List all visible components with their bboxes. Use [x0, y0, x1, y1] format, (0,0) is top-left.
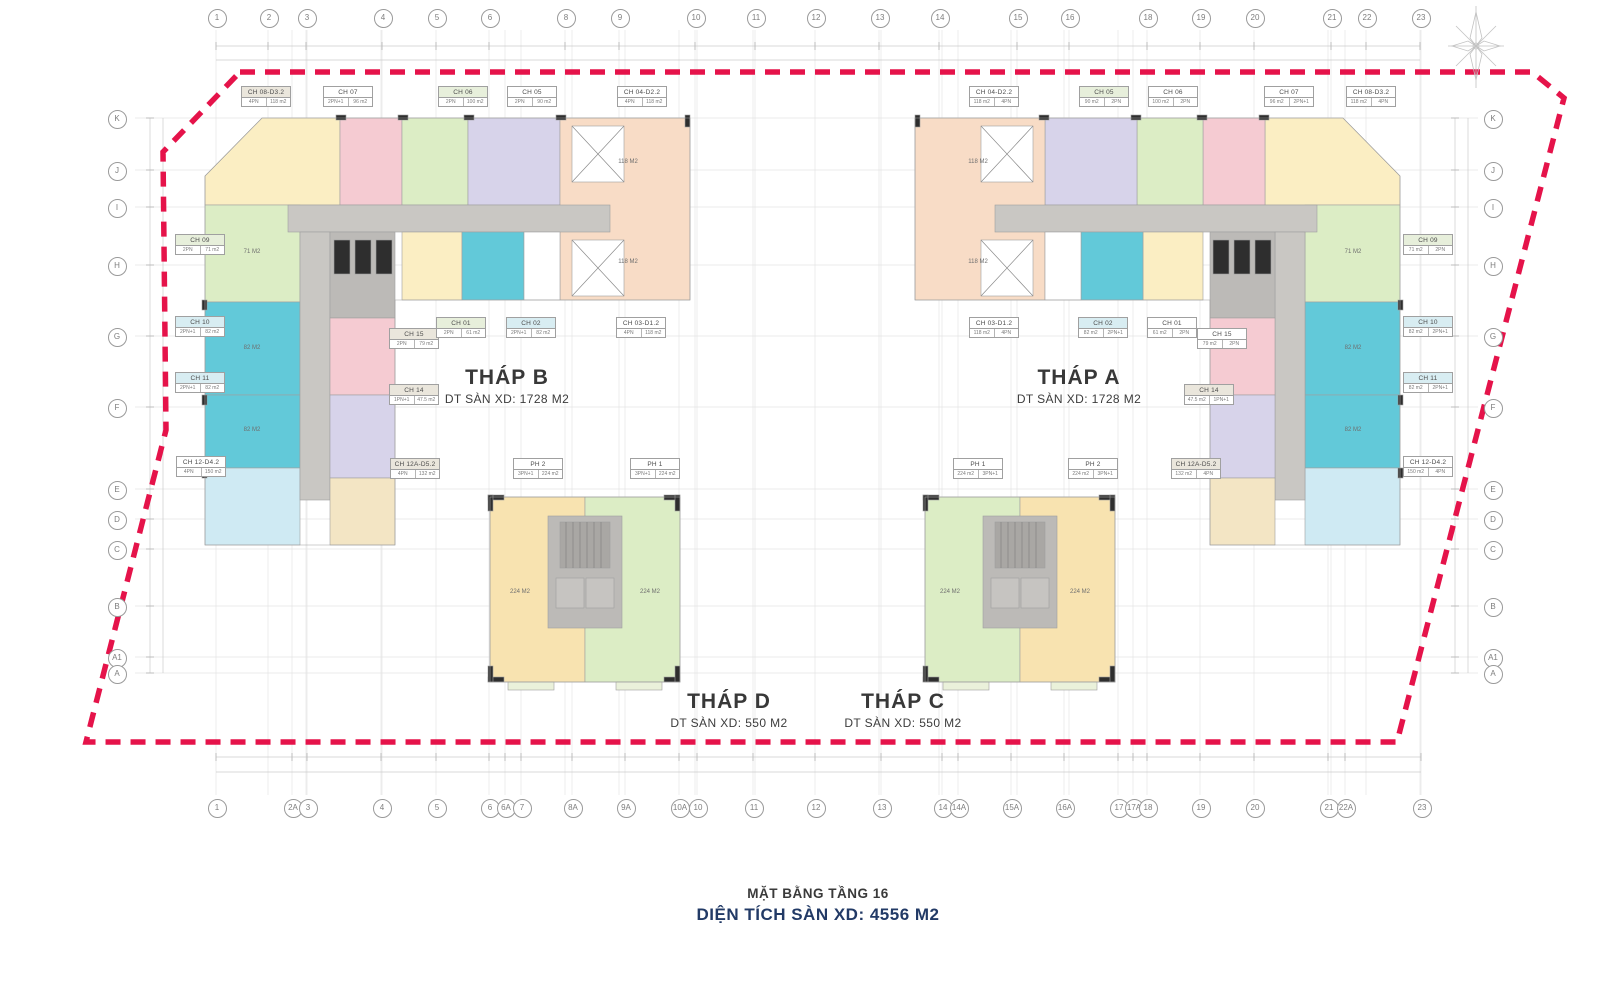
unit-label-ch-06: CH 062PN100 m2: [438, 86, 488, 107]
unit-area-text: 118 M2: [968, 159, 988, 165]
tower-c-title: THÁP C DT SÀN XD: 550 M2: [773, 690, 1033, 730]
unit-label-ph-2: PH 23PN+1224 m2: [513, 458, 563, 479]
grid-column-bubble-top: 12: [807, 9, 826, 28]
grid-column-bubble-bottom: 10: [689, 799, 708, 818]
unit-label-ch-10: CH 102PN+182 m2: [175, 316, 225, 337]
grid-row-bubble-left: H: [108, 257, 127, 276]
tower-b-area: DT SÀN XD: 1728 M2: [377, 392, 637, 406]
unit-label-ch-01: CH 0161 m22PN: [1147, 317, 1197, 338]
grid-column-bubble-top: 14: [931, 9, 950, 28]
unit-label-ch-09: CH 092PN71 m2: [175, 234, 225, 255]
grid-column-bubble-bottom: 19: [1192, 799, 1211, 818]
grid-row-bubble-left: C: [108, 541, 127, 560]
grid-column-bubble-top: 4: [374, 9, 393, 28]
unit-label-ch-07: CH 0796 m22PN+1: [1264, 86, 1314, 107]
tower-a-area: DT SÀN XD: 1728 M2: [949, 392, 1209, 406]
grid-column-bubble-bottom: 9A: [617, 799, 636, 818]
unit-label-ch-02: CH 0282 m22PN+1: [1078, 317, 1128, 338]
grid-column-bubble-top: 6: [481, 9, 500, 28]
unit-label-ch-04-d2.2: CH 04-D2.24PN118 m2: [617, 86, 667, 107]
grid-column-bubble-bottom: 14A: [950, 799, 969, 818]
unit-label-ch-03-d1.2: CH 03-D1.2118 m24PN: [969, 317, 1019, 338]
grid-column-bubble-top: 1: [208, 9, 227, 28]
grid-column-bubble-top: 21: [1323, 9, 1342, 28]
sheet-title-line2: DIỆN TÍCH SÀN XD: 4556 M2: [518, 905, 1118, 925]
grid-column-bubble-top: 23: [1412, 9, 1431, 28]
sheet-title-line1: MẶT BẰNG TẦNG 16: [518, 886, 1118, 901]
grid-column-bubble-top: 16: [1061, 9, 1080, 28]
unit-area-text: 224 M2: [510, 589, 530, 595]
tower-c-name: THÁP C: [773, 690, 1033, 714]
unit-area-text: 71 M2: [244, 249, 261, 255]
grid-row-bubble-left: J: [108, 162, 127, 181]
unit-label-ph-1: PH 1224 m23PN+1: [953, 458, 1003, 479]
unit-label-ch-07: CH 072PN+196 m2: [323, 86, 373, 107]
grid-column-bubble-bottom: 15A: [1003, 799, 1022, 818]
grid-column-bubble-top: 20: [1246, 9, 1265, 28]
grid-row-bubble-left: E: [108, 481, 127, 500]
grid-column-bubble-bottom: 4: [373, 799, 392, 818]
unit-area-text: 224 M2: [1070, 589, 1090, 595]
unit-label-ch-15: CH 1579 m22PN: [1197, 328, 1247, 349]
grid-column-bubble-top: 22: [1358, 9, 1377, 28]
grid-column-bubble-bottom: 8A: [564, 799, 583, 818]
floor-plan-svg: [0, 0, 1600, 984]
grid-row-bubble-left: D: [108, 511, 127, 530]
unit-label-ch-01: CH 012PN61 m2: [436, 317, 486, 338]
unit-label-ch-02: CH 022PN+182 m2: [506, 317, 556, 338]
grid-column-bubble-bottom: 23: [1413, 799, 1432, 818]
tower-b-title: THÁP B DT SÀN XD: 1728 M2: [377, 366, 637, 406]
tower-c-area: DT SÀN XD: 550 M2: [773, 716, 1033, 730]
grid-column-bubble-bottom: 16A: [1056, 799, 1075, 818]
unit-area-text: 82 M2: [244, 427, 261, 433]
tower-b-name: THÁP B: [377, 366, 637, 390]
grid-row-bubble-left: F: [108, 399, 127, 418]
tower-a-title: THÁP A DT SÀN XD: 1728 M2: [949, 366, 1209, 406]
grid-column-bubble-top: 11: [747, 9, 766, 28]
grid-column-bubble-top: 8: [557, 9, 576, 28]
unit-label-ch-12-d4.2: CH 12-D4.24PN150 m2: [176, 456, 226, 477]
unit-label-ch-05: CH 0590 m22PN: [1079, 86, 1129, 107]
unit-area-text: 82 M2: [1345, 427, 1362, 433]
unit-label-ch-11: CH 112PN+182 m2: [175, 372, 225, 393]
grid-column-bubble-top: 18: [1139, 9, 1158, 28]
unit-label-ch-10: CH 1082 m22PN+1: [1403, 316, 1453, 337]
grid-column-bubble-top: 10: [687, 9, 706, 28]
grid-column-bubble-top: 13: [871, 9, 890, 28]
grid-column-bubble-bottom: 21: [1320, 799, 1339, 818]
grid-row-bubble-left: A: [108, 665, 127, 684]
unit-area-text: 224 M2: [940, 589, 960, 595]
unit-area-text: 224 M2: [640, 589, 660, 595]
grid-row-bubble-right: J: [1484, 162, 1503, 181]
grid-row-bubble-right: E: [1484, 481, 1503, 500]
grid-row-bubble-right: I: [1484, 199, 1503, 218]
grid-row-bubble-left: K: [108, 110, 127, 129]
unit-label-ch-12a-d5.2: CH 12A-D5.24PN132 m2: [390, 458, 440, 479]
grid-column-bubble-bottom: 5: [428, 799, 447, 818]
unit-area-text: 82 M2: [1345, 345, 1362, 351]
grid-row-bubble-right: G: [1484, 328, 1503, 347]
grid-column-bubble-top: 9: [611, 9, 630, 28]
grid-column-bubble-bottom: 7: [513, 799, 532, 818]
unit-label-ch-09: CH 0971 m22PN: [1403, 234, 1453, 255]
floor-plan-sheet: THÁP B DT SÀN XD: 1728 M2 THÁP A DT SÀN …: [0, 0, 1600, 984]
unit-area-text: 118 M2: [618, 159, 638, 165]
grid-row-bubble-left: G: [108, 328, 127, 347]
grid-column-bubble-bottom: 1: [208, 799, 227, 818]
grid-row-bubble-left: B: [108, 598, 127, 617]
grid-column-bubble-bottom: 20: [1246, 799, 1265, 818]
grid-row-bubble-right: H: [1484, 257, 1503, 276]
grid-column-bubble-bottom: 12: [807, 799, 826, 818]
unit-label-ch-12-d4.2: CH 12-D4.2150 m24PN: [1403, 456, 1453, 477]
compass-icon: [1448, 6, 1504, 88]
grid-column-bubble-top: 3: [298, 9, 317, 28]
unit-label-ph-2: PH 2224 m23PN+1: [1068, 458, 1118, 479]
unit-label-ch-12a-d5.2: CH 12A-D5.2132 m24PN: [1171, 458, 1221, 479]
unit-area-text: 82 M2: [244, 345, 261, 351]
unit-label-ch-08-d3.2: CH 08-D3.2118 m24PN: [1346, 86, 1396, 107]
unit-label-ch-06: CH 06100 m22PN: [1148, 86, 1198, 107]
grid-row-bubble-right: A: [1484, 665, 1503, 684]
unit-label-ch-04-d2.2: CH 04-D2.2118 m24PN: [969, 86, 1019, 107]
grid-column-bubble-bottom: 3: [299, 799, 318, 818]
grid-row-bubble-right: C: [1484, 541, 1503, 560]
unit-label-ch-15: CH 152PN79 m2: [389, 328, 439, 349]
grid-row-bubble-right: D: [1484, 511, 1503, 530]
grid-column-bubble-top: 15: [1009, 9, 1028, 28]
tower-a-name: THÁP A: [949, 366, 1209, 390]
grid-column-bubble-bottom: 18: [1139, 799, 1158, 818]
grid-column-bubble-bottom: 13: [873, 799, 892, 818]
grid-column-bubble-top: 19: [1192, 9, 1211, 28]
unit-area-text: 71 M2: [1345, 249, 1362, 255]
sheet-title: MẶT BẰNG TẦNG 16 DIỆN TÍCH SÀN XD: 4556 …: [518, 886, 1118, 925]
unit-label-ph-1: PH 13PN+1224 m2: [630, 458, 680, 479]
grid-row-bubble-left: I: [108, 199, 127, 218]
grid-column-bubble-top: 2: [260, 9, 279, 28]
unit-label-ch-05: CH 052PN90 m2: [507, 86, 557, 107]
grid-column-bubble-bottom: 10A: [671, 799, 690, 818]
grid-column-bubble-top: 5: [428, 9, 447, 28]
unit-area-text: 118 M2: [618, 259, 638, 265]
unit-label-ch-03-d1.2: CH 03-D1.24PN118 m2: [616, 317, 666, 338]
unit-area-text: 118 M2: [968, 259, 988, 265]
unit-label-ch-08-d3.2: CH 08-D3.24PN118 m2: [241, 86, 291, 107]
grid-column-bubble-bottom: 22A: [1337, 799, 1356, 818]
unit-label-ch-11: CH 1182 m22PN+1: [1403, 372, 1453, 393]
grid-row-bubble-right: K: [1484, 110, 1503, 129]
grid-row-bubble-right: B: [1484, 598, 1503, 617]
grid-row-bubble-right: F: [1484, 399, 1503, 418]
grid-column-bubble-bottom: 11: [745, 799, 764, 818]
